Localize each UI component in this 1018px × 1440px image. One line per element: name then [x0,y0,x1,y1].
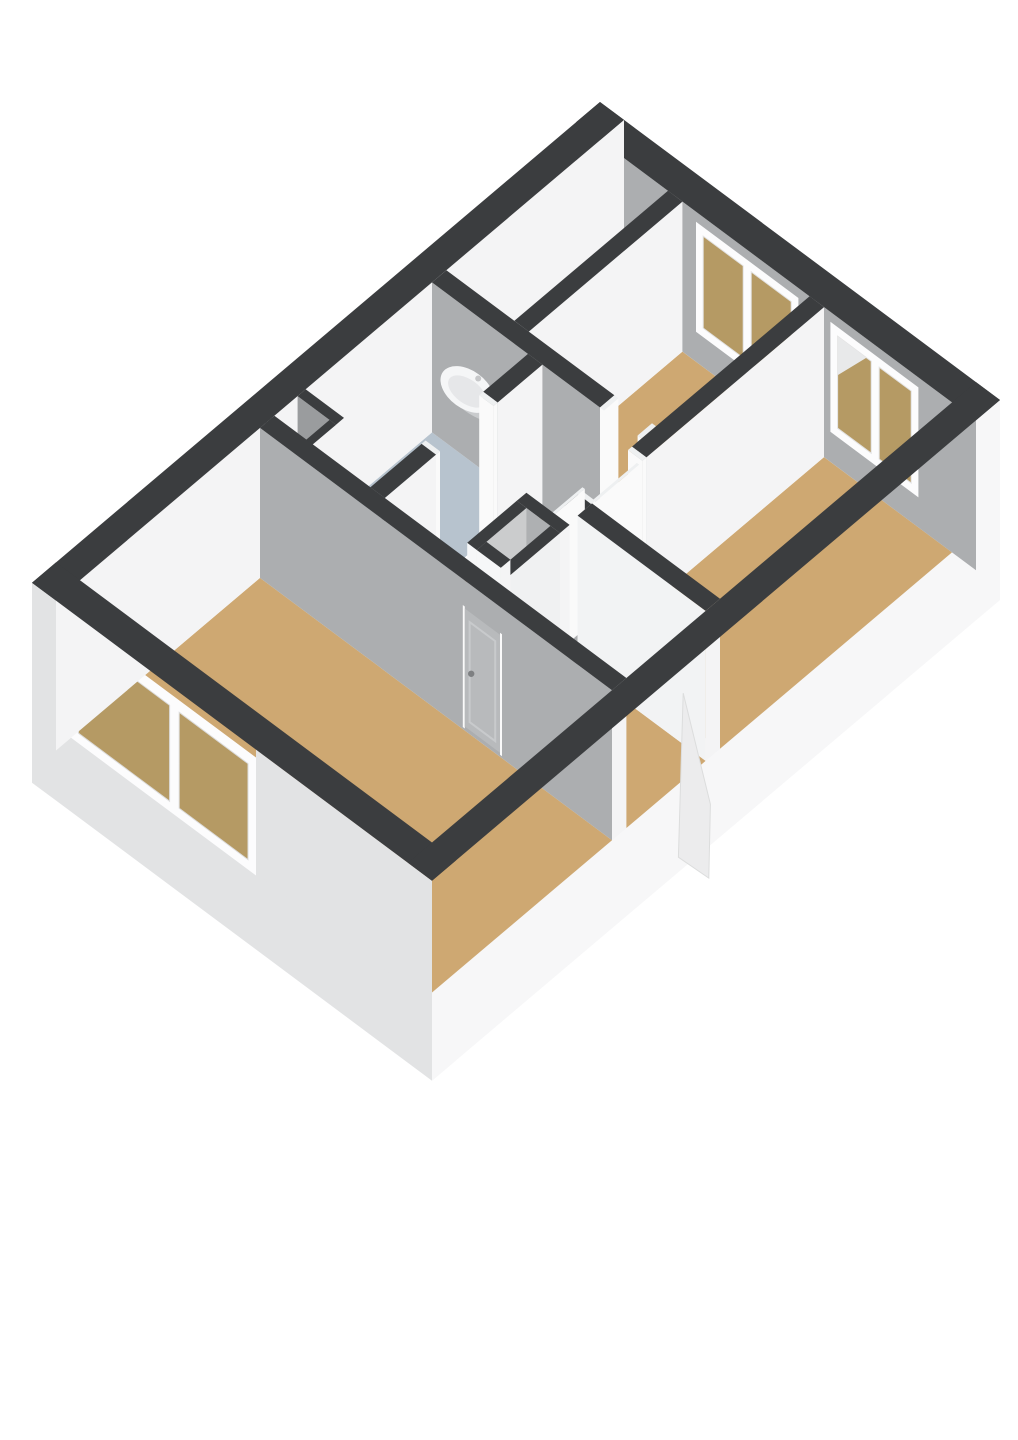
exterior-wall-cap-east [976,400,1000,620]
door-living-room-jamb [463,605,465,729]
floorplan-3d-render [0,0,1018,1440]
washbasin-faucet [475,375,481,381]
door-handle [468,671,474,677]
door-living-room-jamb [500,633,502,757]
floorplan-stage [0,0,1018,1440]
